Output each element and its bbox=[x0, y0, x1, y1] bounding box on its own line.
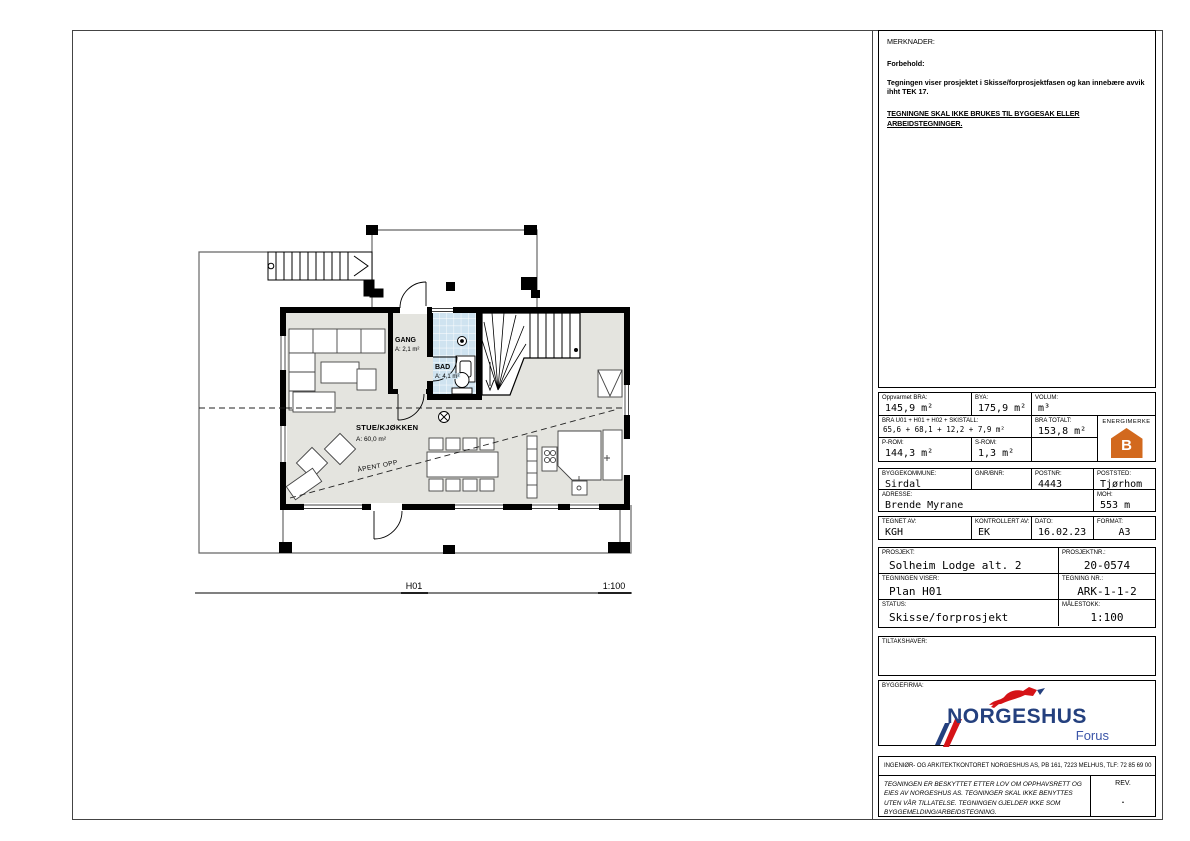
area-summary-table: Oppvarmet BRA: 145,9 m² BYA: 175,9 m² VO… bbox=[878, 392, 1156, 462]
title-block: MERKNADER: Forbehold: Tegningen viser pr… bbox=[878, 30, 1156, 817]
cell-tegnet-av: TEGNET AV: KGH bbox=[879, 517, 972, 539]
room-area-stue: A: 60,0 m² bbox=[356, 436, 387, 443]
room-area-gang: A: 2,1 m² bbox=[395, 347, 419, 353]
notes-title: MERKNADER: bbox=[887, 37, 1147, 46]
floor-plan: GANG A: 2,1 m² BAD A: 4,1 m² STUE/KJØKKE… bbox=[72, 30, 872, 820]
cell-gnr-bnr: GNR/BNR: bbox=[972, 469, 1032, 490]
exterior-stair bbox=[268, 252, 383, 297]
cell-tegningen-viser: TEGNINGEN VISER: Plan H01 bbox=[879, 574, 1059, 600]
plan-scale-label: 1:100 bbox=[603, 581, 626, 591]
signoff-table: TEGNET AV: KGH KONTROLLERT AV: EK DATO: … bbox=[878, 516, 1156, 540]
cell-format: FORMAT: A3 bbox=[1094, 517, 1155, 539]
norway-map-icon bbox=[987, 685, 1049, 709]
cell-adresse: ADRESSE: Brende Myrane bbox=[879, 490, 1094, 511]
cell-malestokk: MÅLESTOKK: 1:100 bbox=[1059, 600, 1155, 626]
cell-prosjektnr: PROSJEKTNR.: 20-0574 bbox=[1059, 548, 1155, 574]
shower-drain-icon bbox=[458, 337, 467, 346]
tiltakshaver-box: TILTAKSHAVER: bbox=[878, 636, 1156, 676]
terrace-door bbox=[374, 511, 402, 539]
kitchen-counter bbox=[603, 430, 622, 480]
energy-grade-house-icon: B bbox=[1111, 428, 1143, 458]
room-area-bad: A: 4,1 m² bbox=[435, 374, 459, 380]
cell-volum: VOLUM: m³ bbox=[1032, 393, 1155, 416]
site-table: BYGGEKOMMUNE: Sirdal GNR/BNR: POSTNR: 44… bbox=[878, 468, 1156, 512]
cell-prosjekt: PROSJEKT: Solheim Lodge alt. 2 bbox=[879, 548, 1059, 574]
cell-tegning-nr: TEGNING NR.: ARK-1-1-2 bbox=[1059, 574, 1155, 600]
cell-bra-sum: BRA U01 + H01 + H02 + SKISTALL: 65,6 + 6… bbox=[879, 416, 1032, 438]
notes-subtitle: Forbehold: bbox=[887, 59, 1147, 68]
plan-name-label: H01 bbox=[406, 581, 423, 591]
entrance-door bbox=[400, 282, 426, 308]
copyright-box: TEGNINGEN ER BESKYTTET ETTER LOV OM OPPH… bbox=[878, 775, 1156, 817]
cell-status: STATUS: Skisse/forprosjekt bbox=[879, 600, 1059, 626]
bathroom bbox=[433, 313, 476, 394]
notes-box: MERKNADER: Forbehold: Tegningen viser pr… bbox=[878, 30, 1156, 388]
floor-drain-icon bbox=[439, 412, 450, 423]
cell-empty bbox=[1032, 438, 1098, 461]
office-info-box: INGENIØR- OG ARKITEKTKONTORET NORGESHUS … bbox=[878, 756, 1156, 776]
titleblock-divider bbox=[872, 30, 873, 820]
cell-kontrollert-av: KONTROLLERT AV: EK bbox=[972, 517, 1032, 539]
cell-poststed: POSTSTED: Tjørhom bbox=[1094, 469, 1155, 490]
drawing-sheet: { "sheet": { "notes": { "title": "MERKNA… bbox=[0, 0, 1190, 841]
byggefirma-box: BYGGEFIRMA: NORGESHUS Forus bbox=[878, 680, 1156, 746]
revision-cell: REV. . bbox=[1091, 776, 1155, 816]
room-label-bad: BAD bbox=[435, 364, 450, 371]
cell-moh: MOH: 553 m bbox=[1094, 490, 1155, 511]
project-table: PROSJEKT: Solheim Lodge alt. 2 PROSJEKTN… bbox=[878, 547, 1156, 628]
scale-bar: H01 1:100 bbox=[195, 581, 632, 593]
logo-subtext: Forus bbox=[1076, 728, 1109, 743]
notes-body: Tegningen viser prosjektet i Skisse/forp… bbox=[887, 78, 1145, 97]
cell-dato: DATO: 16.02.23 bbox=[1032, 517, 1094, 539]
norgeshus-logo: NORGESHUS Forus bbox=[879, 689, 1155, 745]
copyright-text: TEGNINGEN ER BESKYTTET ETTER LOV OM OPPH… bbox=[879, 776, 1091, 816]
cell-oppvarmet-bra: Oppvarmet BRA: 145,9 m² bbox=[879, 393, 972, 416]
room-label-gang: GANG bbox=[395, 337, 417, 344]
energy-label-cell: ENERGIMERKE B bbox=[1098, 416, 1155, 461]
cell-bya: BYA: 175,9 m² bbox=[972, 393, 1032, 416]
cell-bra-totalt: BRA TOTALT: 153,8 m² bbox=[1032, 416, 1098, 438]
cell-p-rom: P-ROM: 144,3 m² bbox=[879, 438, 972, 461]
cell-byggekommune: BYGGEKOMMUNE: Sirdal bbox=[879, 469, 972, 490]
cell-s-rom: S-ROM: 1,3 m² bbox=[972, 438, 1032, 461]
fridge-cabinet bbox=[598, 370, 622, 397]
notes-warning: TEGNINGNE SKAL IKKE BRUKES TIL BYGGESAK … bbox=[887, 109, 1147, 128]
room-label-stue: STUE/KJØKKEN bbox=[356, 423, 418, 432]
kitchen-island bbox=[558, 431, 601, 480]
cell-postnr: POSTNR: 4443 bbox=[1032, 469, 1094, 490]
